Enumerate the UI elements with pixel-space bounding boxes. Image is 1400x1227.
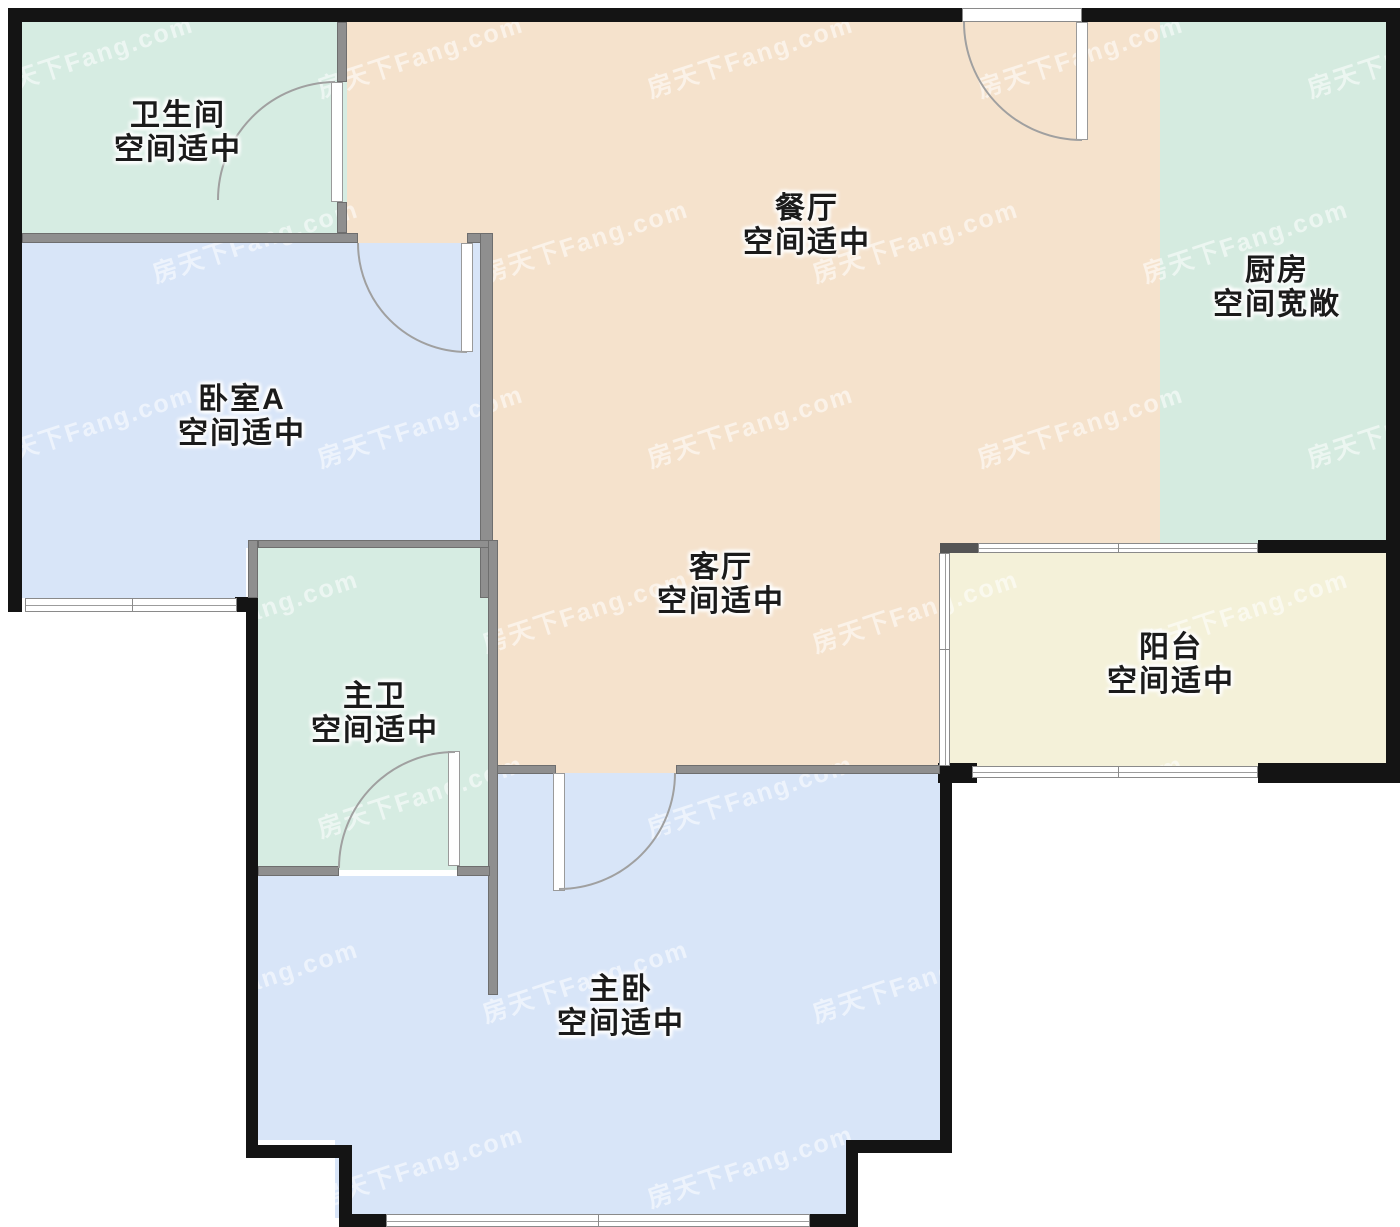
wall-master-bath-bottom-west <box>258 866 339 876</box>
wall-living-bottom-east <box>676 765 940 774</box>
watermark: 房天下Fang.com <box>642 1115 858 1216</box>
watermark: 房天下Fang.com <box>0 1115 198 1216</box>
wall-top-east <box>1082 8 1400 22</box>
window-balcony-top <box>978 543 1258 553</box>
wall-master-bath-top <box>258 540 490 548</box>
wall-top-west <box>8 8 962 22</box>
room-name: 客厅 <box>657 551 785 585</box>
room-name: 阳台 <box>1107 631 1235 665</box>
watermark: 房天下Fang.com <box>1137 930 1353 1031</box>
window-glass-line <box>945 554 946 765</box>
room-note: 空间适中 <box>114 133 242 167</box>
wall-balcony-top-east <box>1258 540 1386 553</box>
room-name: 卫生间 <box>114 99 242 133</box>
watermark: 房天下Fang.com <box>477 190 693 291</box>
room-note: 空间适中 <box>1107 665 1235 699</box>
door-leaf-entry <box>1076 22 1088 140</box>
wall-bathroom-right-lower <box>337 202 347 233</box>
wall-notch-sw-h <box>246 1145 352 1158</box>
room-note: 空间适中 <box>657 585 785 619</box>
window-balcony-left <box>939 553 950 766</box>
window-balcony-bottom <box>972 766 1258 778</box>
wall-master-bath-bottom-east <box>457 866 490 876</box>
label-bathroom: 卫生间 空间适中 <box>114 99 242 167</box>
window-divider <box>940 649 949 650</box>
floor-plan: 房天下Fang.com房天下Fang.com房天下Fang.com房天下Fang… <box>0 0 1400 1227</box>
wall-balcony-top-corner <box>940 543 978 553</box>
room-name: 厨房 <box>1213 254 1341 288</box>
wall-living-bottom-west <box>497 765 556 774</box>
label-master-bath: 主卫 空间适中 <box>311 680 439 748</box>
wall-balcony-bottom-east <box>1258 763 1400 783</box>
watermark: 房天下Fang.com <box>972 375 1188 476</box>
room-note: 空间适中 <box>557 1007 685 1041</box>
door-leaf-master-bedroom <box>553 773 565 891</box>
wall-master-right <box>940 773 952 1153</box>
watermark: 房天下Fang.com <box>0 375 198 476</box>
watermark: 房天下Fang.com <box>642 375 858 476</box>
wall-left <box>8 8 22 612</box>
label-balcony: 阳台 空间适中 <box>1107 631 1235 699</box>
door-leaf-master-bath <box>448 751 460 866</box>
label-bedroom-a: 卧室A 空间适中 <box>178 383 306 451</box>
wall-notch-se-v <box>846 1140 858 1227</box>
window-bedroom-a <box>25 598 237 612</box>
door-leaf-bathroom <box>331 82 343 202</box>
room-note: 空间适中 <box>178 417 306 451</box>
window-divider <box>132 599 133 611</box>
watermark: 房天下Fang.com <box>0 745 198 846</box>
window-divider <box>1118 544 1119 552</box>
room-note: 空间适中 <box>743 226 871 260</box>
watermark: 房天下Fang.com <box>1302 1115 1400 1216</box>
label-master-bedroom: 主卧 空间适中 <box>557 973 685 1041</box>
window-master-bedroom <box>386 1214 810 1227</box>
room-name: 主卫 <box>311 680 439 714</box>
wall-west-lower <box>246 598 258 1153</box>
watermark: 房天下Fang.com <box>312 375 528 476</box>
room-name: 主卧 <box>557 973 685 1007</box>
window-glass-line <box>26 605 236 606</box>
label-kitchen: 厨房 空间宽敞 <box>1213 254 1341 322</box>
wall-bathroom-right-upper <box>337 22 347 82</box>
watermark: 房天下Fang.com <box>972 1115 1188 1216</box>
entry-door-opening <box>962 8 1082 22</box>
window-glass-line <box>973 772 1257 773</box>
wall-bottom-west-seg <box>352 1214 386 1227</box>
room-note: 空间宽敞 <box>1213 288 1341 322</box>
wall-right <box>1386 8 1400 783</box>
door-leaf-bedroom-a <box>461 243 473 352</box>
wall-notch-sw-v <box>339 1145 352 1227</box>
wall-notch-se-h <box>846 1140 952 1153</box>
window-divider <box>598 1215 599 1226</box>
watermark: 房天下Fang.com <box>642 745 858 846</box>
room-name: 餐厅 <box>743 192 871 226</box>
wall-master-bath-left <box>248 540 258 598</box>
label-dining: 餐厅 空间适中 <box>743 192 871 260</box>
watermark: 房天下Fang.com <box>807 930 1023 1031</box>
wall-bedroom-a-top-west <box>22 233 358 243</box>
room-note: 空间适中 <box>311 714 439 748</box>
watermark: 房天下Fang.com <box>972 745 1188 846</box>
window-divider <box>1118 767 1119 777</box>
watermark: 房天下Fang.com <box>807 560 1023 661</box>
room-name: 卧室A <box>178 383 306 417</box>
label-living: 客厅 空间适中 <box>657 551 785 619</box>
